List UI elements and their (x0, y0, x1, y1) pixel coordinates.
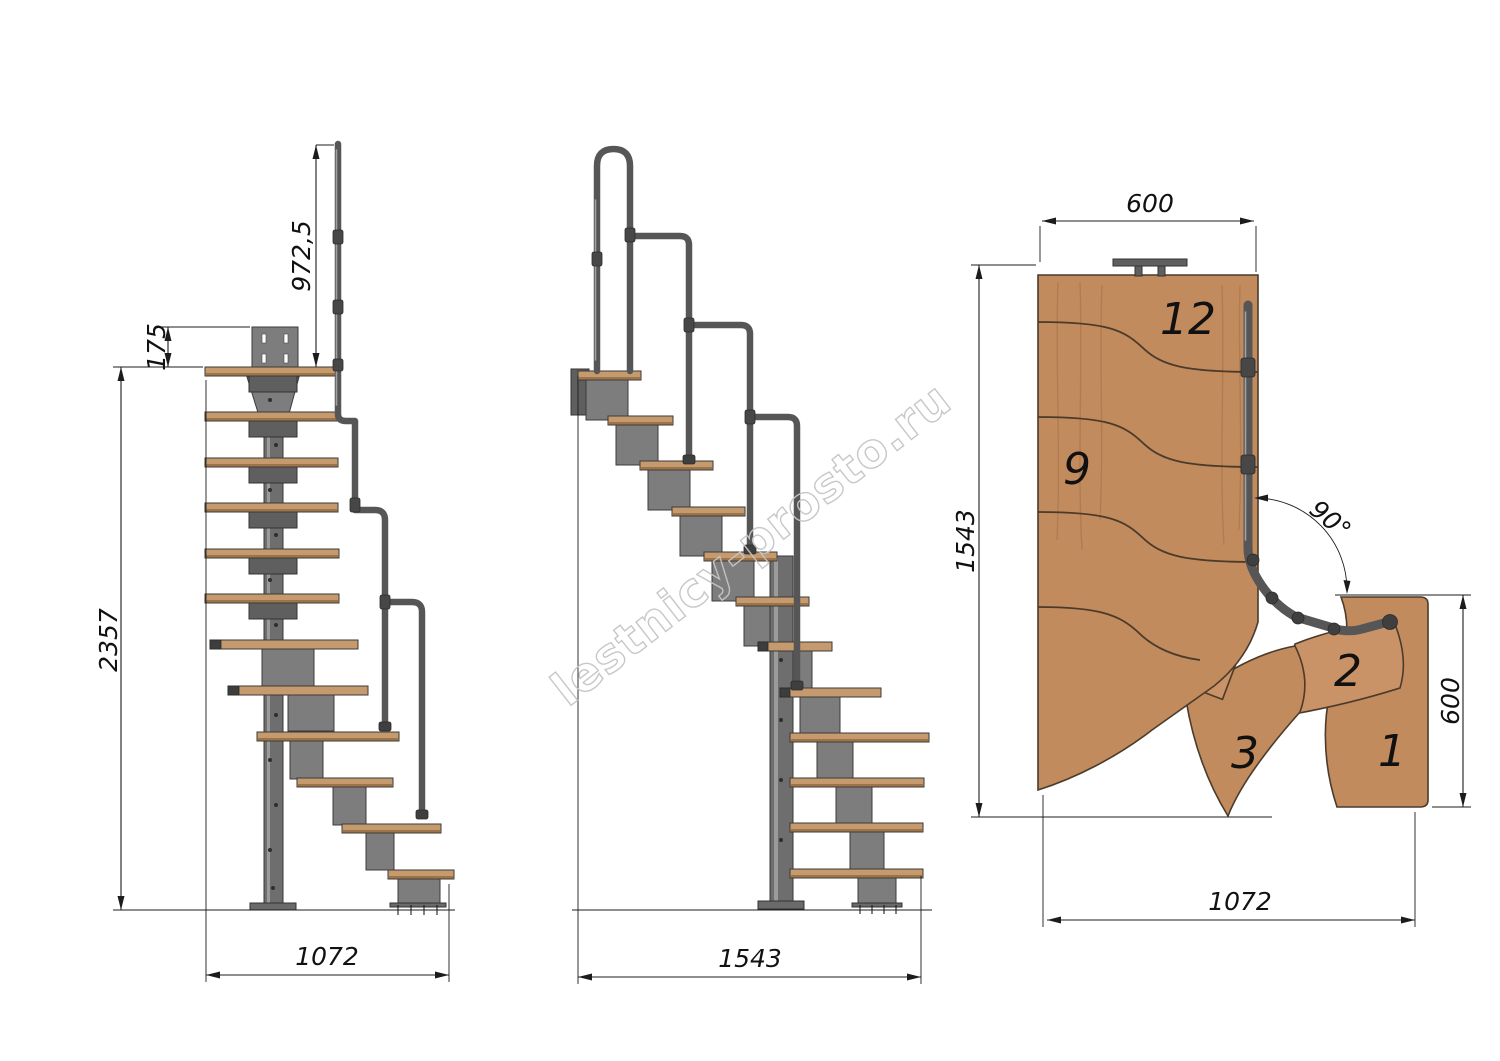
dim-plan-entry-width: 600 (1436, 677, 1465, 725)
dim-rail-height: 972,5 (287, 220, 316, 292)
side-front-view: 972,5 175 2357 1072 (94, 144, 455, 982)
dim-plan-bottom-length: 1072 (1208, 887, 1272, 916)
stair-technical-drawing: 972,5 175 2357 1072 (0, 0, 1500, 1061)
dim-plan-side-length: 1543 (951, 509, 980, 573)
step-label-2: 2 (1334, 646, 1362, 697)
handrail-plan (1241, 305, 1398, 635)
step-label-12: 12 (1160, 294, 1216, 345)
dim-turn-angle: 90° (1304, 494, 1357, 545)
dim-plate-offset-group: 175 (142, 323, 250, 371)
wall-mount-plate (252, 327, 298, 368)
dim-profile-base-length: 1543 (718, 944, 782, 973)
dim-total-height: 2357 (94, 608, 123, 672)
front-treads (205, 367, 454, 879)
dim-plate-offset: 175 (142, 323, 171, 371)
dim-front-base-length: 1072 (295, 942, 359, 971)
handrail-front (333, 144, 428, 819)
step-label-9: 9 (1063, 444, 1091, 495)
dim-total-height-group: 2357 (94, 367, 203, 910)
step-label-3: 3 (1231, 728, 1259, 779)
dim-plan-top-width: 600 (1126, 189, 1174, 218)
dim-turn-angle-group: 90° (1254, 494, 1357, 594)
plan-view: 12 9 2 3 1 90° 600 1543 (951, 189, 1471, 927)
step-label-1: 1 (1378, 726, 1406, 777)
top-bracket (1113, 259, 1187, 276)
